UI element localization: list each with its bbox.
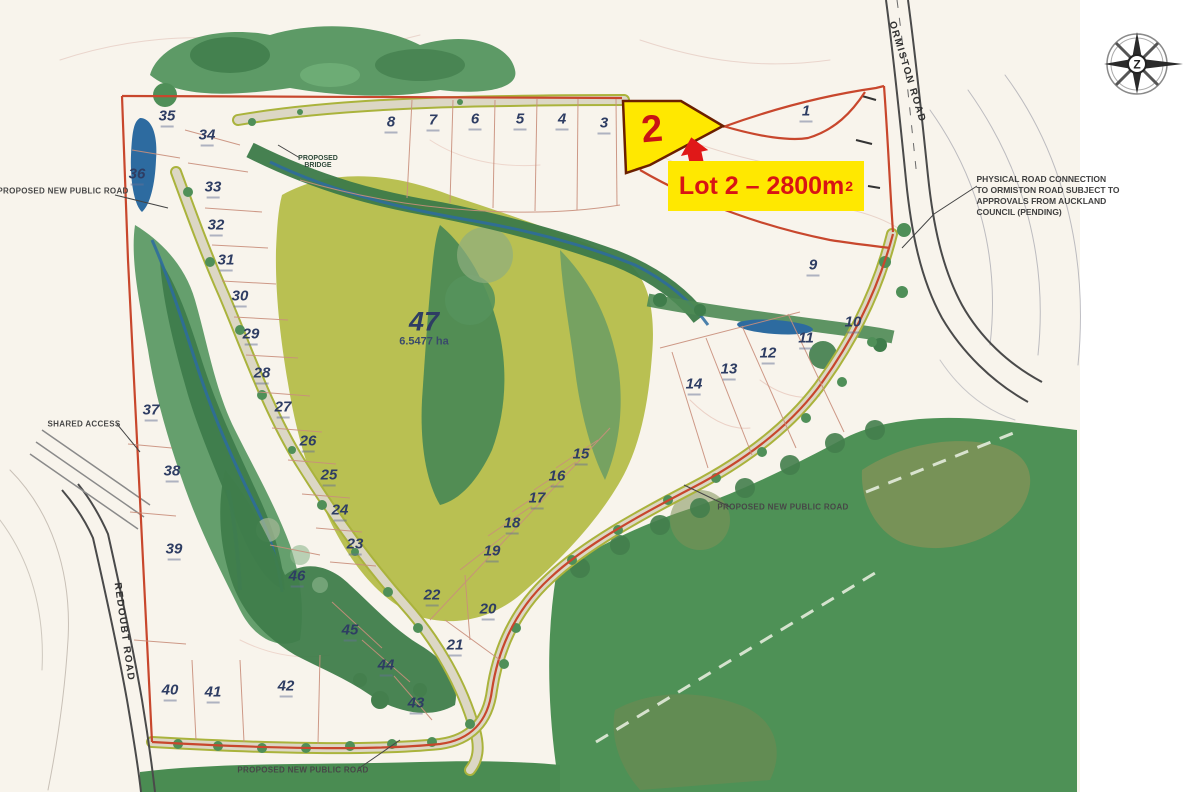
compass-rose-icon: Z	[1104, 32, 1183, 94]
map-artwork: Z	[0, 0, 1200, 792]
subdivision-plan-map: Z PROPOSED NEW PUBLIC ROAD SHARED ACCESS…	[0, 0, 1200, 792]
compass-letter: Z	[1133, 58, 1140, 72]
